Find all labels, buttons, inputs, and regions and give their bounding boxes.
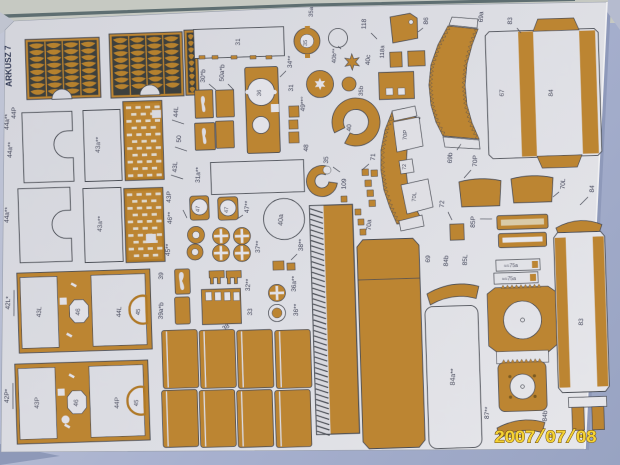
svg-text:71: 71 [370,153,377,161]
svg-text:83: 83 [578,318,585,326]
svg-text:44P: 44P [114,397,121,409]
svg-text:83: 83 [507,17,514,25]
svg-text:33: 33 [247,308,254,316]
svg-text:32**: 32** [245,278,252,291]
svg-text:40b**: 40b** [332,48,339,64]
svg-text:67: 67 [499,89,506,97]
svg-text:72: 72 [439,200,446,208]
svg-text:46**: 46** [167,211,174,224]
svg-text:84b: 84b [542,410,549,421]
svg-text:43a**: 43a** [95,136,103,153]
svg-text:50a*b: 50a*b [219,64,227,82]
svg-text:35a: 35a [309,6,315,17]
svg-text:43a**: 43a** [97,215,105,232]
svg-text:40: 40 [346,124,353,132]
svg-text:36**: 36** [293,303,300,316]
svg-text:40c: 40c [365,54,372,65]
svg-text:43P: 43P [34,397,41,409]
svg-text:70a: 70a [366,219,373,230]
svg-text:109: 109 [341,178,348,189]
svg-text:84: 84 [589,185,596,193]
svg-text:35b: 35b [359,85,365,96]
svg-text:2007/07/08: 2007/07/08 [494,428,597,449]
svg-text:42P*: 42P* [4,388,12,403]
svg-text:47**: 47** [244,200,251,213]
svg-text:85L: 85L [462,254,469,265]
svg-text:49**°: 49**° [299,96,308,112]
svg-text:45: 45 [134,399,140,407]
svg-text:43L: 43L [172,161,179,172]
svg-text:44L: 44L [173,106,180,117]
svg-text:84: 84 [548,89,555,97]
svg-text:31: 31 [288,84,295,92]
svg-text:85P: 85P [470,216,477,228]
svg-text:70L: 70L [560,178,567,189]
svg-text:44a**: 44a** [7,141,15,158]
svg-text:48: 48 [303,144,310,152]
svg-text:70P: 70P [472,155,479,167]
svg-text:37**: 37** [255,240,262,253]
svg-text:46: 46 [73,399,80,407]
svg-text:86: 86 [423,17,430,25]
svg-text:44a**: 44a** [4,113,12,130]
svg-text:84b: 84b [443,255,450,266]
svg-text:34**: 34** [287,55,294,68]
svg-text:84a**: 84a** [450,368,458,386]
svg-text:40a: 40a [278,214,285,226]
svg-text:31a**: 31a** [195,166,203,183]
svg-text:35: 35 [323,156,330,164]
svg-text:43P: 43P [166,191,173,203]
svg-text:45: 45 [136,308,142,316]
svg-text:70P: 70P [403,130,409,141]
svg-text:39: 39 [158,272,165,280]
svg-text:≈≈75a: ≈≈75a [502,276,516,282]
svg-text:44P: 44P [11,107,18,119]
svg-text:50: 50 [176,135,183,143]
svg-text:36: 36 [257,89,263,97]
svg-text:39a*b: 39a*b [158,302,166,320]
svg-text:46: 46 [75,308,82,316]
svg-text:69: 69 [425,255,432,263]
svg-text:43L: 43L [36,306,43,317]
svg-text:42L*: 42L* [5,296,13,310]
svg-text:36a**: 36a** [291,275,299,292]
svg-text:44a**: 44a** [4,206,12,223]
svg-text:≈≈75a: ≈≈75a [504,263,518,269]
svg-text:70L: 70L [412,191,418,202]
svg-text:69a: 69a [478,11,485,22]
svg-text:87**: 87** [484,406,491,419]
svg-text:38**: 38** [298,238,305,251]
svg-text:31: 31 [235,38,242,46]
svg-text:35: 35 [303,40,309,46]
svg-text:47: 47 [195,206,201,212]
svg-text:47: 47 [224,207,230,213]
svg-text:69b: 69b [447,152,454,163]
svg-text:118: 118 [361,18,368,29]
svg-text:44L: 44L [116,306,123,317]
svg-text:45**: 45** [165,243,172,256]
svg-text:ARKUSZ 7: ARKUSZ 7 [2,45,13,87]
svg-text:118a: 118a [380,45,387,59]
svg-text:30*b: 30*b [200,69,208,83]
svg-text:72: 72 [402,164,408,170]
